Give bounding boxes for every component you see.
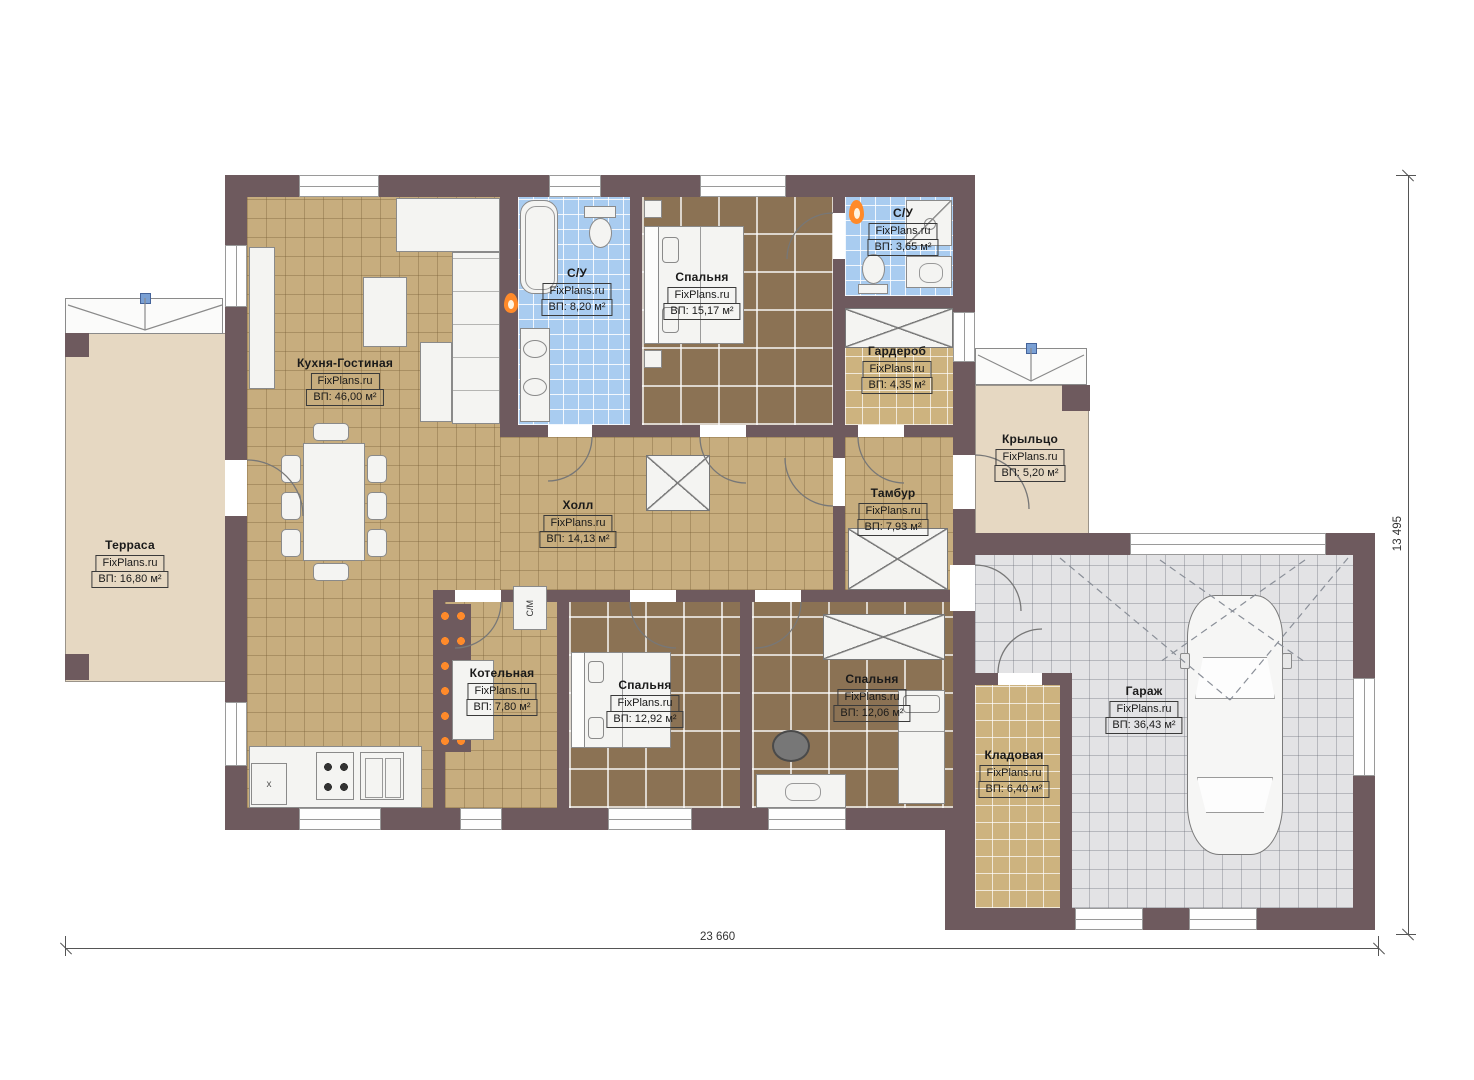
chair [367,529,387,557]
boiler-flame-icon [504,293,518,313]
chair [281,455,301,483]
headboard [645,227,659,343]
door-terrace [225,460,247,516]
room-label-porch: Крыльцо FixPlans.ru ВП: 5,20 м² [994,432,1065,482]
sink-bowl [385,758,401,798]
watermark: FixPlans.ru [1109,701,1178,718]
door-bedroom2 [630,590,676,602]
watermark: FixPlans.ru [837,689,906,706]
room-label-bathroom2: С/У FixPlans.ru ВП: 3,65 м² [867,206,938,256]
desk [756,774,846,808]
pillow [588,661,604,683]
wardrobe-closet [845,308,953,348]
watermark: FixPlans.ru [543,515,612,532]
chair [313,423,349,441]
blanket-line [899,731,944,732]
dimension-label-bottom: 23 660 [700,931,735,943]
dimension-label-right: 13 495 [1392,516,1404,551]
bedroom3-closet [823,614,945,660]
toilet-bowl [862,254,885,284]
pot [772,730,810,762]
dimension-line-bottom [65,948,1378,949]
window [953,312,975,362]
room-label-bedroom3: Спальня FixPlans.ru ВП: 12,06 м² [833,672,910,722]
toilet-bowl [589,218,612,248]
door-bedroom1 [700,425,746,437]
room-area: ВП: 4,35 м² [861,377,932,394]
room-name: Терраса [105,538,155,552]
window [299,175,379,197]
room-name: Котельная [470,666,535,680]
room-label-storage: Кладовая FixPlans.ru ВП: 6,40 м² [978,748,1049,798]
sink [919,263,943,283]
watermark: FixPlans.ru [979,765,1048,782]
boiler-flame-icon [849,200,864,224]
room-area: ВП: 12,92 м² [606,711,683,728]
window [1075,908,1143,930]
nightstand [644,200,662,218]
window [549,175,601,197]
watermark: FixPlans.ru [542,283,611,300]
room-name: Спальня [618,678,671,692]
watermark: FixPlans.ru [858,503,927,520]
terrace-floor [65,333,227,682]
door-porch [953,455,975,509]
room-area: ВП: 6,40 м² [978,781,1049,798]
room-area: ВП: 16,80 м² [91,571,168,588]
room-area: ВП: 12,06 м² [833,705,910,722]
room-name: С/У [567,266,587,280]
room-label-terrace: Терраса FixPlans.ru ВП: 16,80 м² [91,538,168,588]
room-label-vestibule: Тамбур FixPlans.ru ВП: 7,93 м² [857,486,928,536]
room-name: Кухня-Гостиная [297,356,393,370]
storage-right-wall [1060,673,1072,908]
kitchen-island [363,277,407,347]
washing-machine: С/М [513,586,547,630]
chair [281,529,301,557]
door-vestibule-garage [950,565,975,611]
toilet-tank [858,284,888,294]
pillow [662,237,679,263]
room-label-kitchen-living: Кухня-Гостиная FixPlans.ru ВП: 46,00 м² [297,356,393,406]
car-mirror [1180,653,1190,669]
car-windshield [1195,657,1275,699]
partition-boiler-bedroom2 [557,602,569,808]
door-wardrobe [858,425,904,437]
terrace-post-top [65,333,89,357]
floor-hatch-label: x [267,779,272,790]
porch-truss-node [1026,343,1037,354]
hall-closet [646,455,710,511]
terrace-post-bottom [65,654,89,680]
partition-kitchen-bath1 [500,197,518,437]
room-label-hall: Холл FixPlans.ru ВП: 14,13 м² [539,498,616,548]
chair [281,492,301,520]
room-label-boiler: Котельная FixPlans.ru ВП: 7,80 м² [466,666,537,716]
kitchen-sink [360,752,404,800]
watermark: FixPlans.ru [95,555,164,572]
chair [313,563,349,581]
terrace-truss-node [140,293,151,304]
room-area: ВП: 7,80 м² [466,699,537,716]
washing-machine-label: С/М [525,600,535,617]
room-name: Гараж [1126,684,1163,698]
room-label-bedroom2: Спальня FixPlans.ru ВП: 12,92 м² [606,678,683,728]
pillow [588,717,604,739]
vanity-counter [906,256,952,288]
room-area: ВП: 15,17 м² [663,303,740,320]
side-table [420,342,452,422]
nightstand [644,350,662,368]
room-area: ВП: 8,20 м² [541,299,612,316]
window [1189,908,1257,930]
room-name: Спальня [675,270,728,284]
room-name: Кладовая [984,748,1043,762]
room-name: Холл [563,498,594,512]
room-area: ВП: 36,43 м² [1105,717,1182,734]
watermark: FixPlans.ru [862,361,931,378]
room-name: Гардероб [868,344,926,358]
door-bathroom2 [833,213,845,259]
door-hall-vestibule [833,458,845,506]
watermark: FixPlans.ru [610,695,679,712]
sink [523,378,547,396]
window [225,245,247,307]
door-bathroom1 [548,425,592,437]
partition-bedroom2-bedroom3 [740,602,752,808]
kitchen-counter-top [396,198,500,252]
room-name: Спальня [845,672,898,686]
car [1187,595,1283,855]
door-boiler [455,590,501,602]
room-area: ВП: 3,65 м² [867,239,938,256]
room-area: ВП: 7,93 м² [857,519,928,536]
room-label-bedroom1: Спальня FixPlans.ru ВП: 15,17 м² [663,270,740,320]
room-label-bathroom1: С/У FixPlans.ru ВП: 8,20 м² [541,266,612,316]
car-body [1187,595,1283,855]
dimension-line-right [1408,175,1409,935]
desk-item [785,783,821,801]
car-mirror [1282,653,1292,669]
room-label-wardrobe: Гардероб FixPlans.ru ВП: 4,35 м² [861,344,932,394]
porch-post [1062,385,1090,411]
partition-bath1-bedroom1 [630,197,642,437]
watermark: FixPlans.ru [995,449,1064,466]
sofa [452,252,500,424]
floor-plan-canvas: x С/М [0,0,1474,1080]
partition-bath2-wardrobe [845,296,953,308]
room-name: С/У [893,206,913,220]
room-area: ВП: 5,20 м² [994,465,1065,482]
stove [316,752,354,800]
window [700,175,786,197]
window [460,808,502,830]
door-bedroom3 [755,590,801,602]
window [299,808,381,830]
chair [367,455,387,483]
window [225,702,247,766]
partition-hall-bottom [433,590,953,602]
sink [523,340,547,358]
room-area: ВП: 46,00 м² [306,389,383,406]
watermark: FixPlans.ru [467,683,536,700]
window [1353,678,1375,776]
watermark: FixPlans.ru [667,287,736,304]
toilet-tank [584,206,616,218]
window [608,808,692,830]
vestibule-closet [848,528,948,590]
floor-hatch: x [251,763,287,805]
chair [367,492,387,520]
sink-bowl [365,758,383,798]
room-area: ВП: 14,13 м² [539,531,616,548]
watermark: FixPlans.ru [310,373,379,390]
kitchen-cabinet [249,247,275,389]
dining-table [303,443,365,561]
window [768,808,846,830]
headboard [572,653,585,747]
room-name: Крыльцо [1002,432,1058,446]
room-label-garage: Гараж FixPlans.ru ВП: 36,43 м² [1105,684,1182,734]
watermark: FixPlans.ru [868,223,937,240]
garage-door [1130,533,1326,555]
car-rear-window [1197,777,1273,813]
room-name: Тамбур [871,486,916,500]
door-storage [998,673,1042,685]
